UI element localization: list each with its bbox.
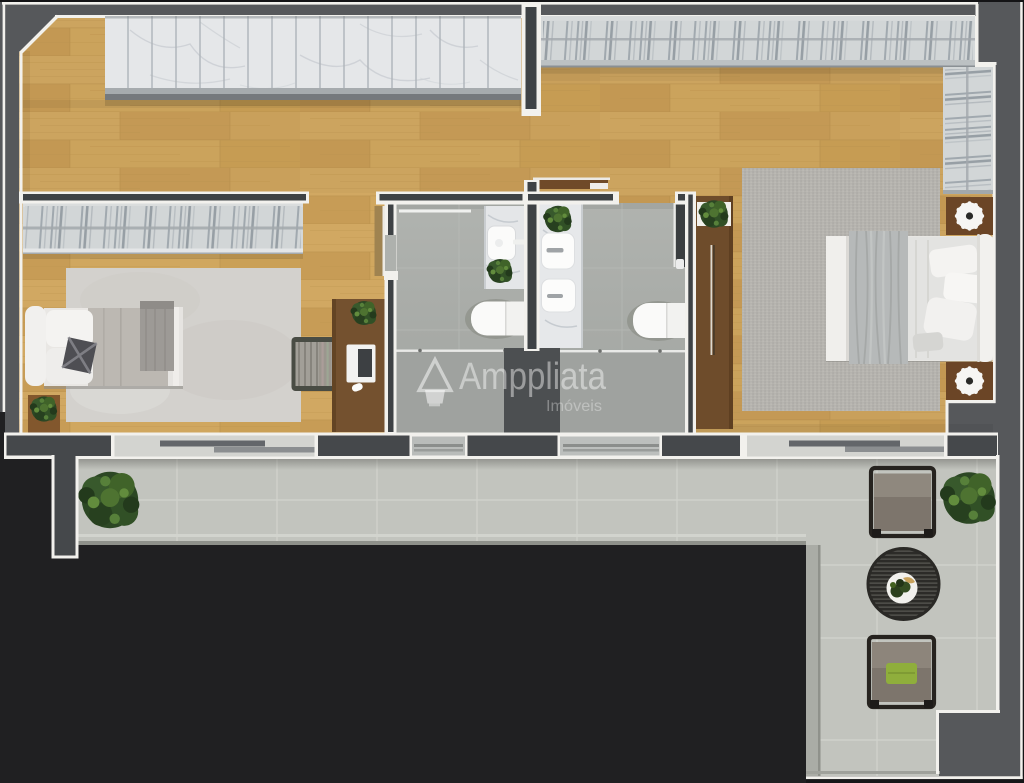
svg-text:Imóveis: Imóveis bbox=[546, 398, 602, 415]
svg-text:Amppliata: Amppliata bbox=[459, 356, 607, 398]
